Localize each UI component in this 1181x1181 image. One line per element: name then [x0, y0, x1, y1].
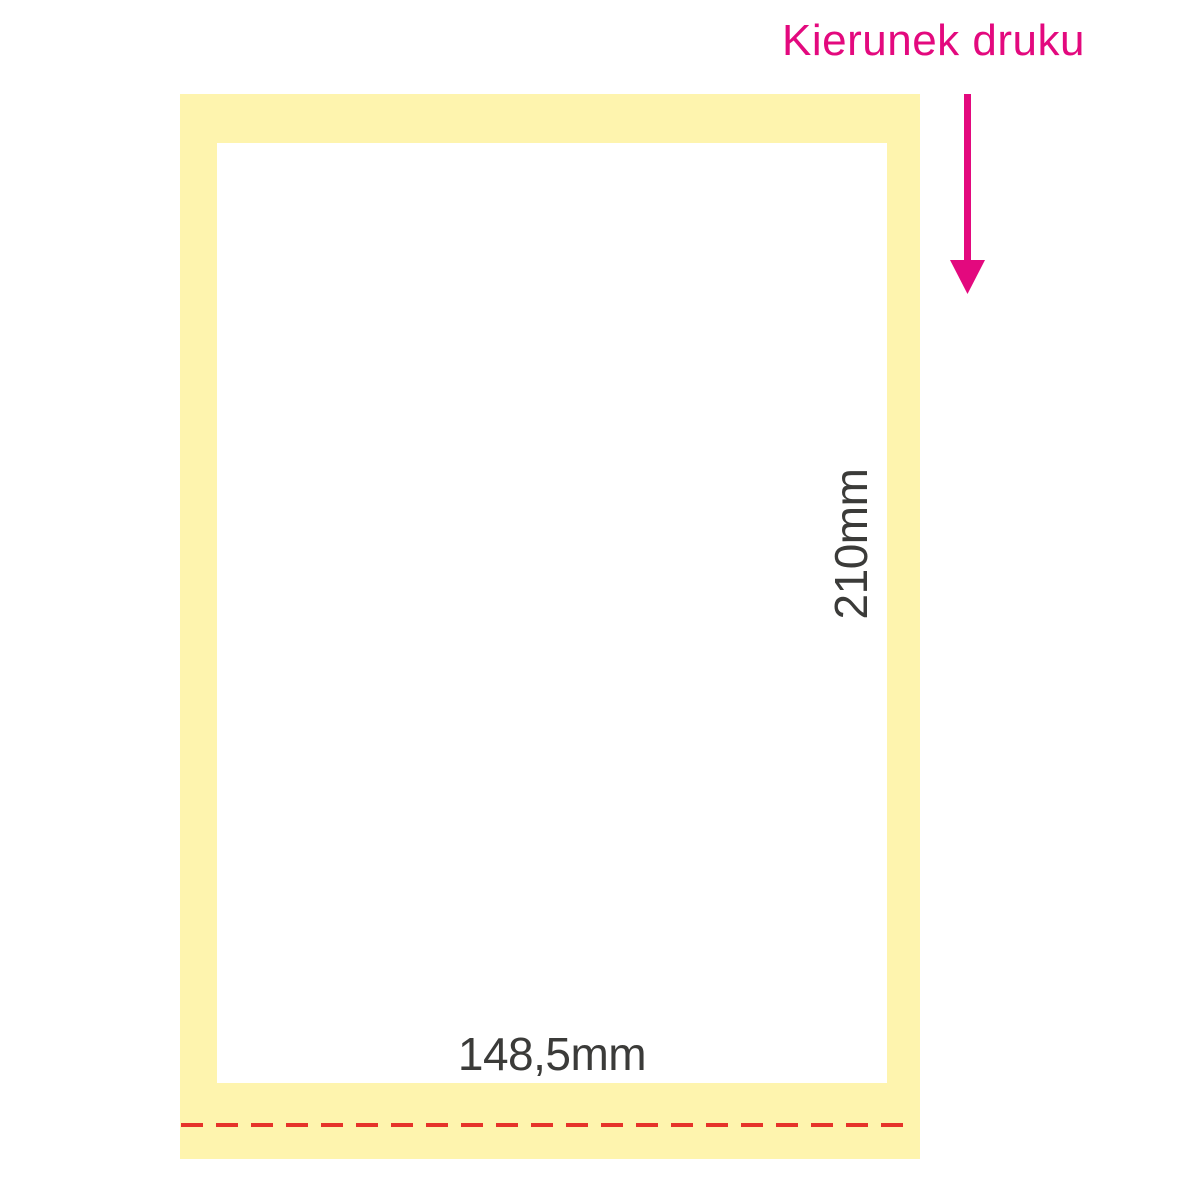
arrow-down-icon: [950, 94, 985, 295]
print-direction-label: Kierunek druku: [782, 19, 1085, 63]
height-dimension-label: 210mm: [828, 469, 874, 620]
fold-line-dashed: [181, 1123, 915, 1127]
print-template-canvas: { "diagram": { "print_direction": { "lab…: [0, 0, 1181, 1181]
trim-area: [217, 143, 887, 1083]
width-dimension-label: 148,5mm: [458, 1031, 646, 1077]
